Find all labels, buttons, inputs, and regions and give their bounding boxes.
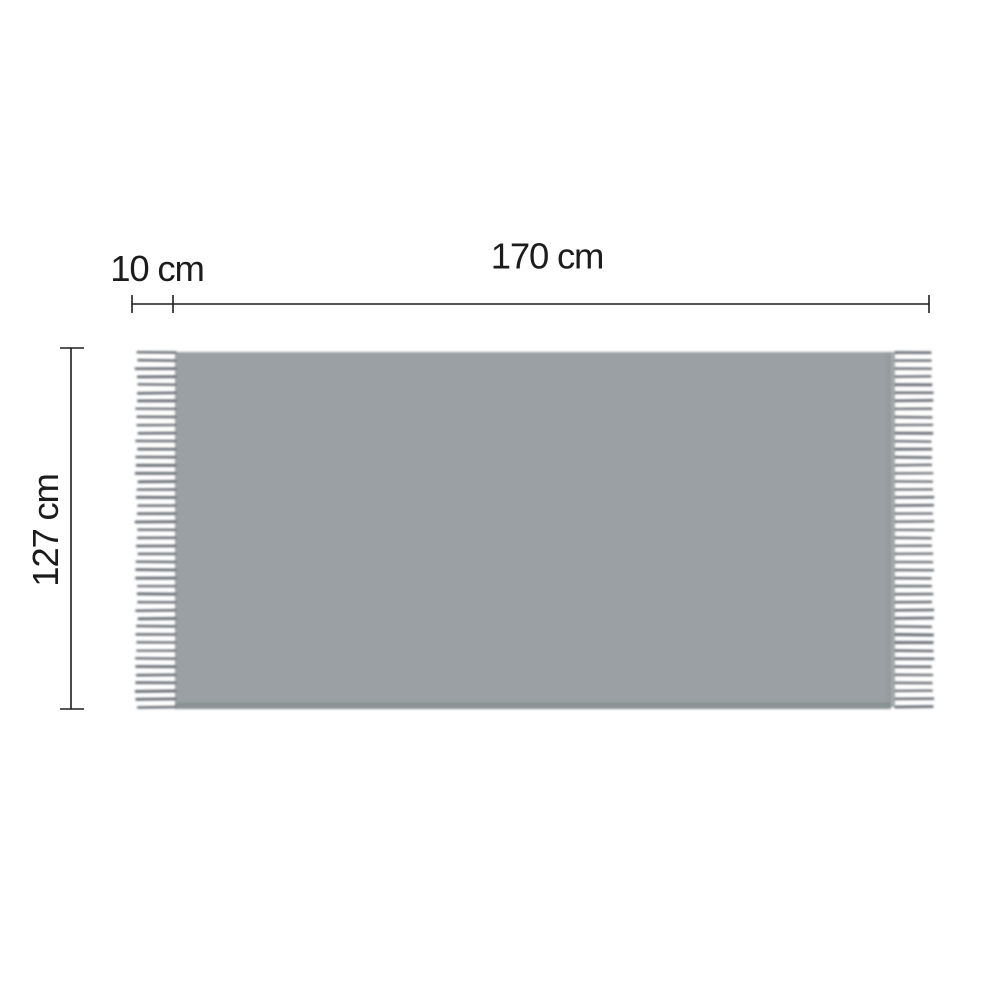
svg-text:127 cm: 127 cm: [25, 474, 66, 587]
svg-text:10 cm: 10 cm: [110, 248, 203, 289]
svg-text:170 cm: 170 cm: [491, 236, 604, 277]
